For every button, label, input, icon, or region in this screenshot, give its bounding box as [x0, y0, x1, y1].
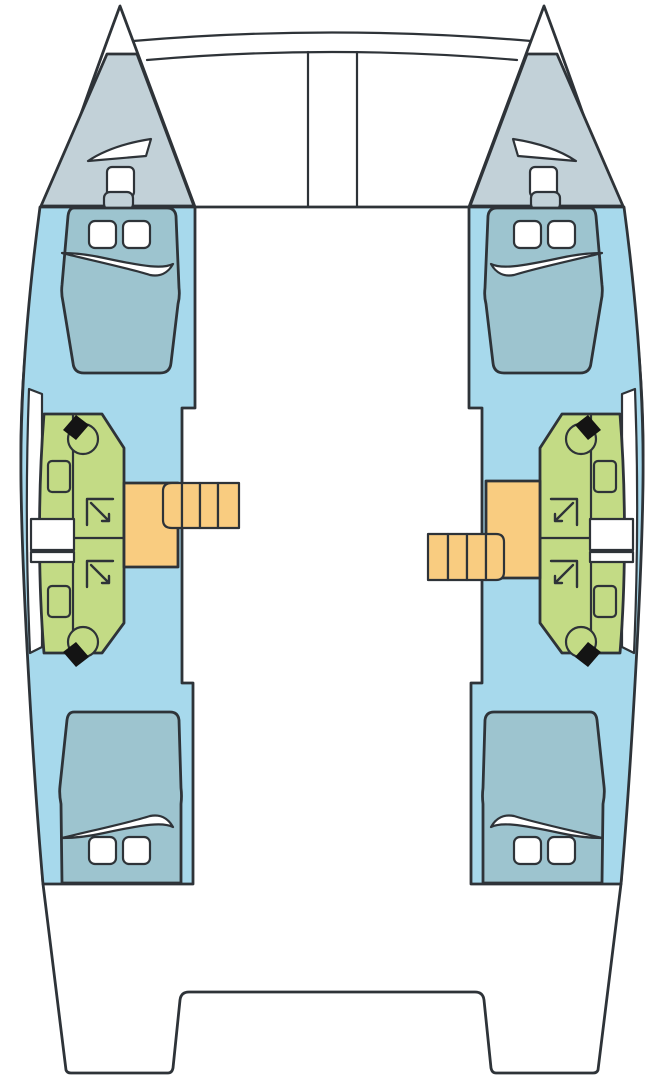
starboard-hull-door-window-lower [590, 552, 633, 562]
port-forward-berth [62, 208, 180, 373]
port-stairs-step-3 [200, 483, 218, 528]
port-hull-door-window-lower [31, 552, 74, 562]
starboard-forward-berth [485, 208, 603, 373]
port-hull [21, 54, 195, 884]
port-stairs-step-1 [163, 483, 182, 528]
port-aft-berth [60, 712, 182, 883]
starboard-hull-door-window [590, 519, 633, 550]
starboard-sink-forward [594, 461, 616, 492]
port-sink-forward [48, 461, 70, 492]
port-aft-berth-pillow-right [123, 837, 150, 864]
catamaran-deck-plan [0, 0, 645, 1080]
starboard-sink-aft [594, 586, 616, 617]
starboard-stairs-step-3 [448, 534, 467, 580]
starboard-aft-berth [483, 712, 605, 883]
catamaran-deck-plan-page [0, 0, 645, 1080]
port-sink-aft [48, 586, 70, 617]
forward-crossbeam-rear-curve [147, 52, 517, 60]
starboard-hull [469, 54, 643, 884]
starboard-aft-berth-pillow-left [548, 837, 575, 864]
forward-crossbeam-front-curve [133, 33, 531, 42]
starboard-stairs-step-1 [486, 534, 504, 580]
port-forward-berth-pillow-left [89, 221, 116, 248]
port-stairs-step-4 [218, 483, 239, 528]
starboard-forward-berth-pillow-right [514, 221, 541, 248]
port-stairs-step-2 [182, 483, 200, 528]
port-forward-berth-pillow-right [123, 221, 150, 248]
starboard-aft-berth-pillow-right [514, 837, 541, 864]
starboard-stairs-step-4 [428, 534, 448, 580]
port-hull-door-window [31, 519, 74, 550]
starboard-stairs-step-2 [467, 534, 486, 580]
starboard-forward-berth-pillow-left [548, 221, 575, 248]
port-aft-berth-pillow-left [89, 837, 116, 864]
